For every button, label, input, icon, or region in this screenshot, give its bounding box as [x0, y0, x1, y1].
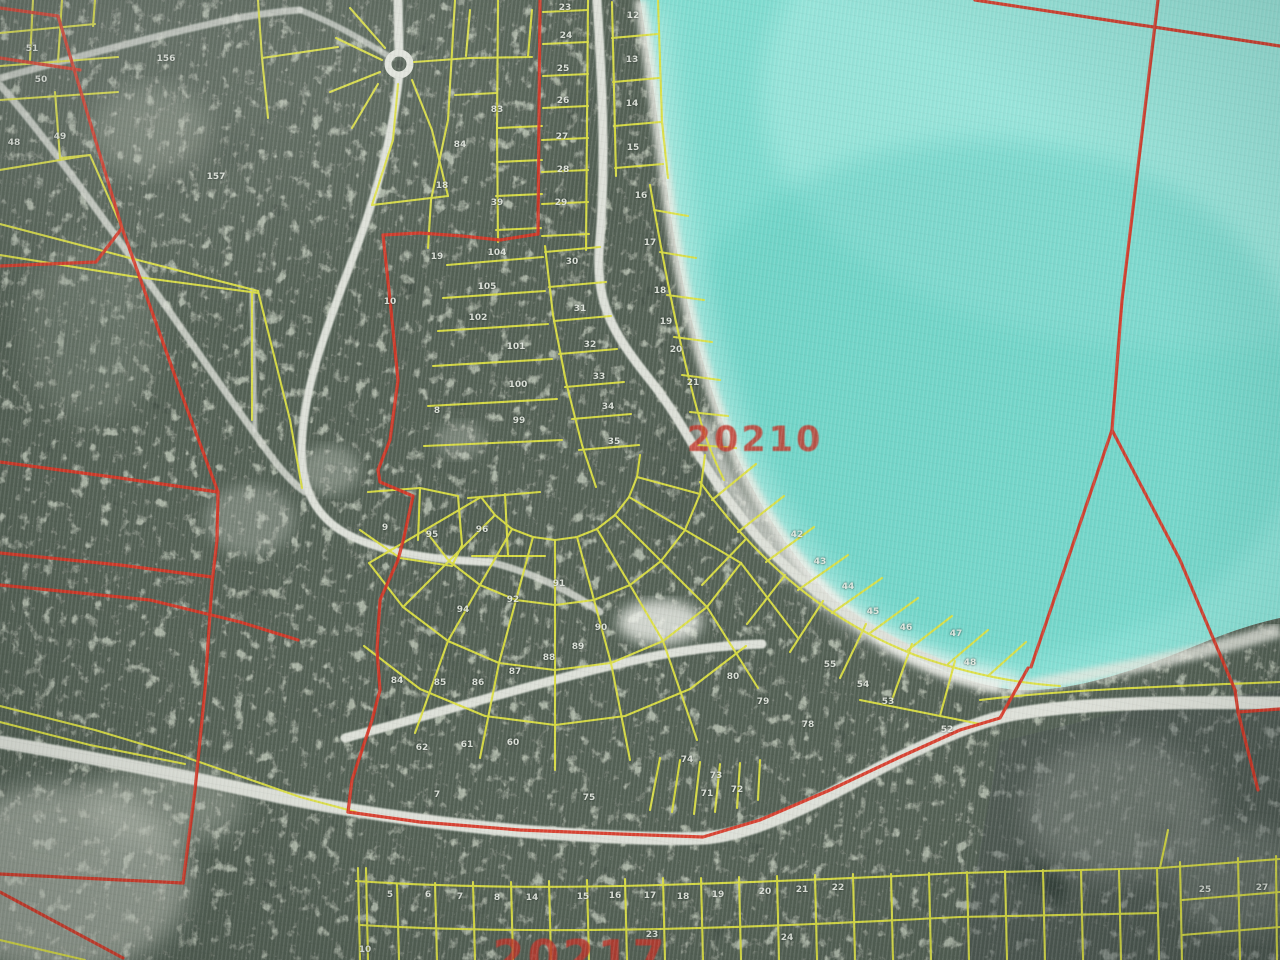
map-canvas[interactable] — [0, 0, 1280, 960]
roundabout — [388, 53, 410, 75]
map-photo-stage: 5150494815615710891041051021011009995969… — [0, 0, 1280, 960]
